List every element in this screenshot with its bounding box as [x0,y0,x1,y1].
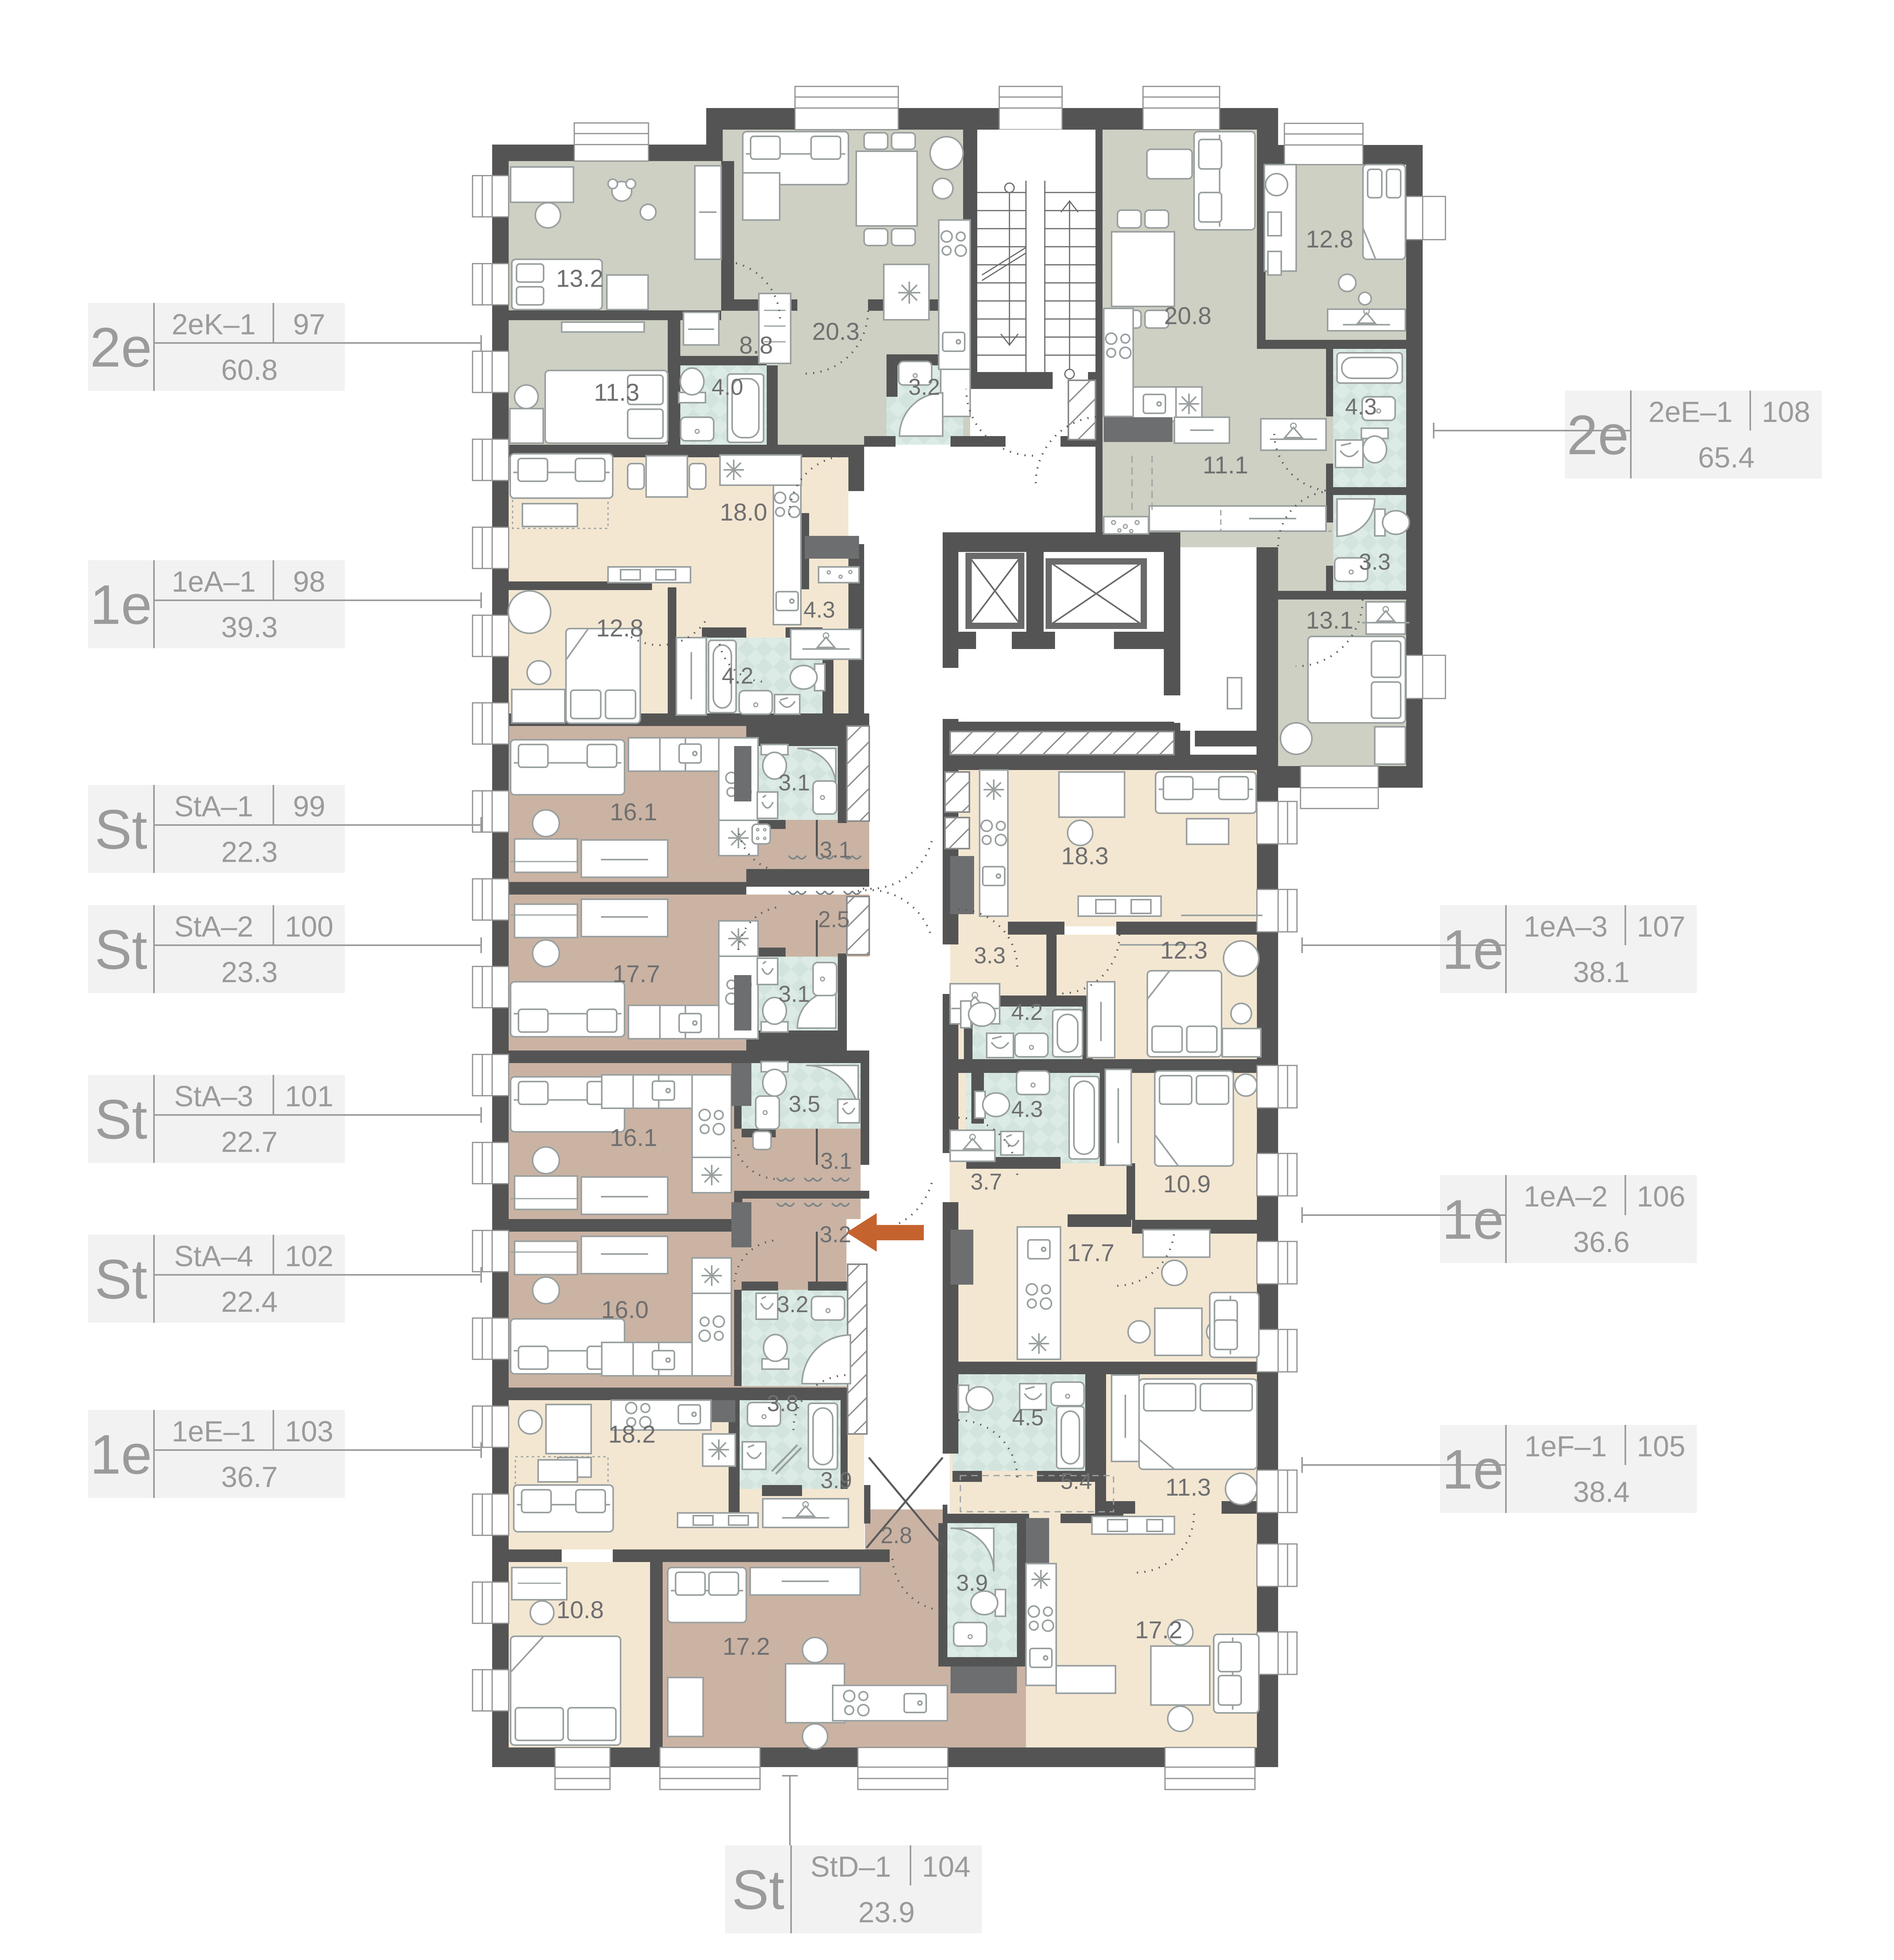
svg-text:22.3: 22.3 [221,836,278,868]
svg-text:8.8: 8.8 [739,332,773,359]
svg-text:4.3: 4.3 [1011,1096,1043,1122]
svg-text:3.8: 3.8 [767,1391,799,1416]
svg-text:4.2: 4.2 [722,663,754,689]
svg-text:60.8: 60.8 [221,354,278,386]
svg-text:98: 98 [293,565,325,598]
svg-text:101: 101 [285,1080,333,1113]
svg-text:3.9: 3.9 [956,1570,988,1596]
svg-text:107: 107 [1637,910,1685,943]
svg-text:4.0: 4.0 [712,374,744,400]
svg-text:4.3: 4.3 [804,597,835,623]
svg-text:2e: 2e [1567,404,1629,466]
svg-text:17.2: 17.2 [1135,1617,1183,1644]
svg-text:17.7: 17.7 [1067,1239,1115,1267]
svg-text:1e: 1e [1442,1438,1504,1501]
svg-text:2.5: 2.5 [818,907,850,932]
svg-text:1eA–3: 1eA–3 [1524,910,1608,943]
svg-text:13.2: 13.2 [556,265,604,292]
svg-text:1e: 1e [90,1423,152,1486]
svg-text:St: St [732,1859,784,1921]
svg-text:4.5: 4.5 [1012,1405,1044,1430]
svg-text:18.0: 18.0 [720,499,767,526]
svg-text:10.9: 10.9 [1163,1171,1211,1198]
svg-text:22.7: 22.7 [221,1126,278,1158]
svg-text:99: 99 [293,790,325,823]
svg-text:36.6: 36.6 [1573,1226,1630,1258]
svg-text:23.3: 23.3 [221,956,278,988]
svg-text:St: St [95,1248,147,1311]
svg-text:5.4: 5.4 [1061,1469,1092,1494]
svg-text:4.2: 4.2 [1011,999,1043,1025]
svg-text:3.2: 3.2 [777,1292,809,1317]
svg-text:1eA–1: 1eA–1 [172,565,256,598]
svg-text:100: 100 [285,910,333,943]
svg-text:1eA–2: 1eA–2 [1524,1180,1608,1213]
svg-text:103: 103 [285,1415,333,1448]
svg-text:StD–1: StD–1 [810,1850,891,1883]
svg-text:12.8: 12.8 [1306,226,1354,253]
svg-text:StA–1: StA–1 [174,790,253,823]
svg-text:16.0: 16.0 [601,1296,649,1324]
svg-text:2eK–1: 2eK–1 [172,308,256,341]
svg-text:11.3: 11.3 [594,379,639,406]
svg-text:11.1: 11.1 [1203,452,1248,479]
svg-text:102: 102 [285,1240,333,1272]
svg-text:97: 97 [293,308,325,341]
svg-text:4.3: 4.3 [1345,394,1377,420]
svg-text:12.8: 12.8 [596,615,644,642]
svg-text:3.1: 3.1 [778,770,810,796]
svg-text:St: St [95,919,147,981]
svg-text:38.4: 38.4 [1573,1476,1630,1508]
svg-text:1e: 1e [90,574,152,636]
svg-text:StA–4: StA–4 [174,1240,253,1272]
svg-text:3.5: 3.5 [789,1091,821,1117]
svg-text:1e: 1e [1442,919,1504,981]
svg-text:105: 105 [1637,1430,1685,1463]
svg-text:104: 104 [922,1850,970,1883]
svg-text:11.3: 11.3 [1165,1474,1211,1501]
svg-text:3.2: 3.2 [820,1222,852,1247]
svg-text:20.8: 20.8 [1164,303,1212,330]
svg-text:3.9: 3.9 [821,1468,852,1493]
svg-text:106: 106 [1637,1180,1685,1213]
svg-text:St: St [95,798,147,861]
svg-text:38.1: 38.1 [1573,956,1630,988]
svg-text:16.1: 16.1 [610,799,658,826]
svg-text:3.1: 3.1 [778,981,810,1007]
svg-text:13.1: 13.1 [1306,607,1354,634]
svg-text:1eF–1: 1eF–1 [1524,1430,1607,1463]
svg-text:18.3: 18.3 [1061,843,1109,870]
svg-text:12.3: 12.3 [1160,937,1208,964]
svg-text:20.3: 20.3 [812,318,860,345]
svg-text:3.2: 3.2 [909,374,940,400]
svg-text:StA–2: StA–2 [174,910,253,943]
svg-text:2eE–1: 2eE–1 [1649,396,1733,428]
svg-text:StA–3: StA–3 [174,1080,253,1113]
svg-text:3.7: 3.7 [971,1169,1002,1195]
svg-text:2.8: 2.8 [881,1523,912,1548]
svg-text:65.4: 65.4 [1698,441,1755,474]
svg-text:36.7: 36.7 [221,1461,278,1493]
svg-text:3.1: 3.1 [821,1148,852,1174]
svg-text:1eE–1: 1eE–1 [172,1415,256,1448]
svg-text:108: 108 [1762,396,1810,428]
svg-text:St: St [95,1088,147,1151]
svg-text:22.4: 22.4 [221,1285,278,1318]
svg-text:3.3: 3.3 [1359,549,1391,575]
svg-text:3.1: 3.1 [820,837,852,863]
svg-text:10.8: 10.8 [557,1597,604,1624]
svg-text:16.1: 16.1 [610,1124,658,1151]
svg-text:3.3: 3.3 [974,943,1006,968]
svg-text:17.2: 17.2 [723,1633,770,1660]
svg-text:2e: 2e [90,316,152,379]
svg-text:23.9: 23.9 [858,1896,915,1929]
svg-text:18.2: 18.2 [608,1421,656,1448]
svg-text:39.3: 39.3 [221,611,278,644]
svg-text:1e: 1e [1442,1188,1504,1251]
svg-text:17.7: 17.7 [613,961,660,988]
